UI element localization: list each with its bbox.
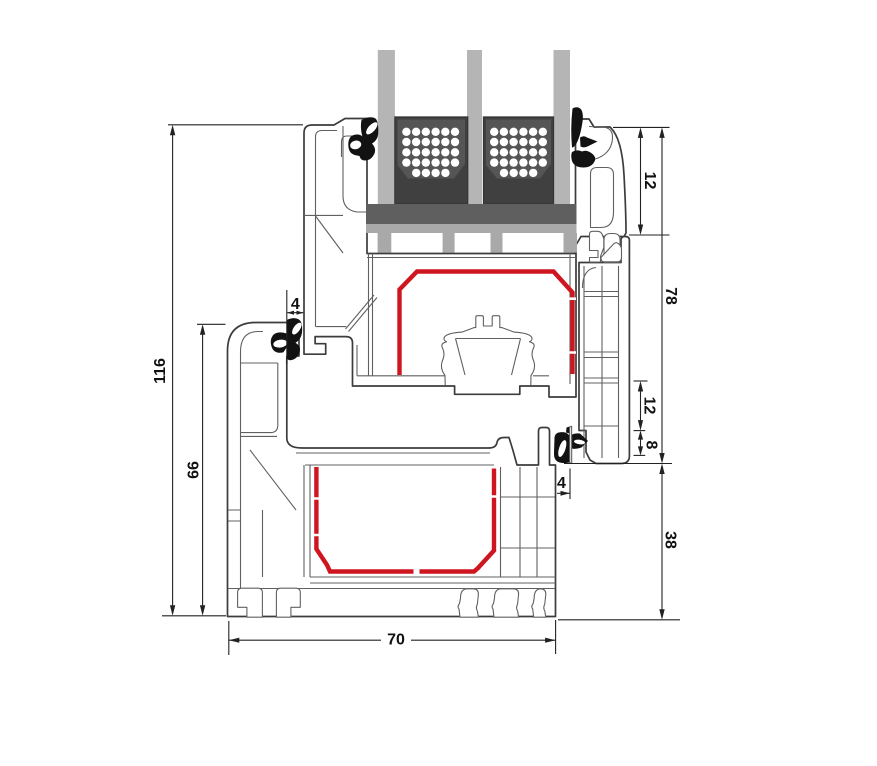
svg-text:12: 12 — [641, 397, 658, 415]
svg-text:66: 66 — [186, 461, 203, 479]
svg-text:78: 78 — [662, 287, 679, 305]
svg-text:4: 4 — [291, 296, 300, 313]
svg-text:12: 12 — [641, 172, 658, 190]
svg-text:70: 70 — [387, 632, 405, 649]
svg-text:38: 38 — [662, 531, 679, 549]
svg-text:116: 116 — [152, 358, 169, 384]
svg-text:4: 4 — [557, 475, 566, 492]
svg-text:8: 8 — [643, 441, 660, 450]
